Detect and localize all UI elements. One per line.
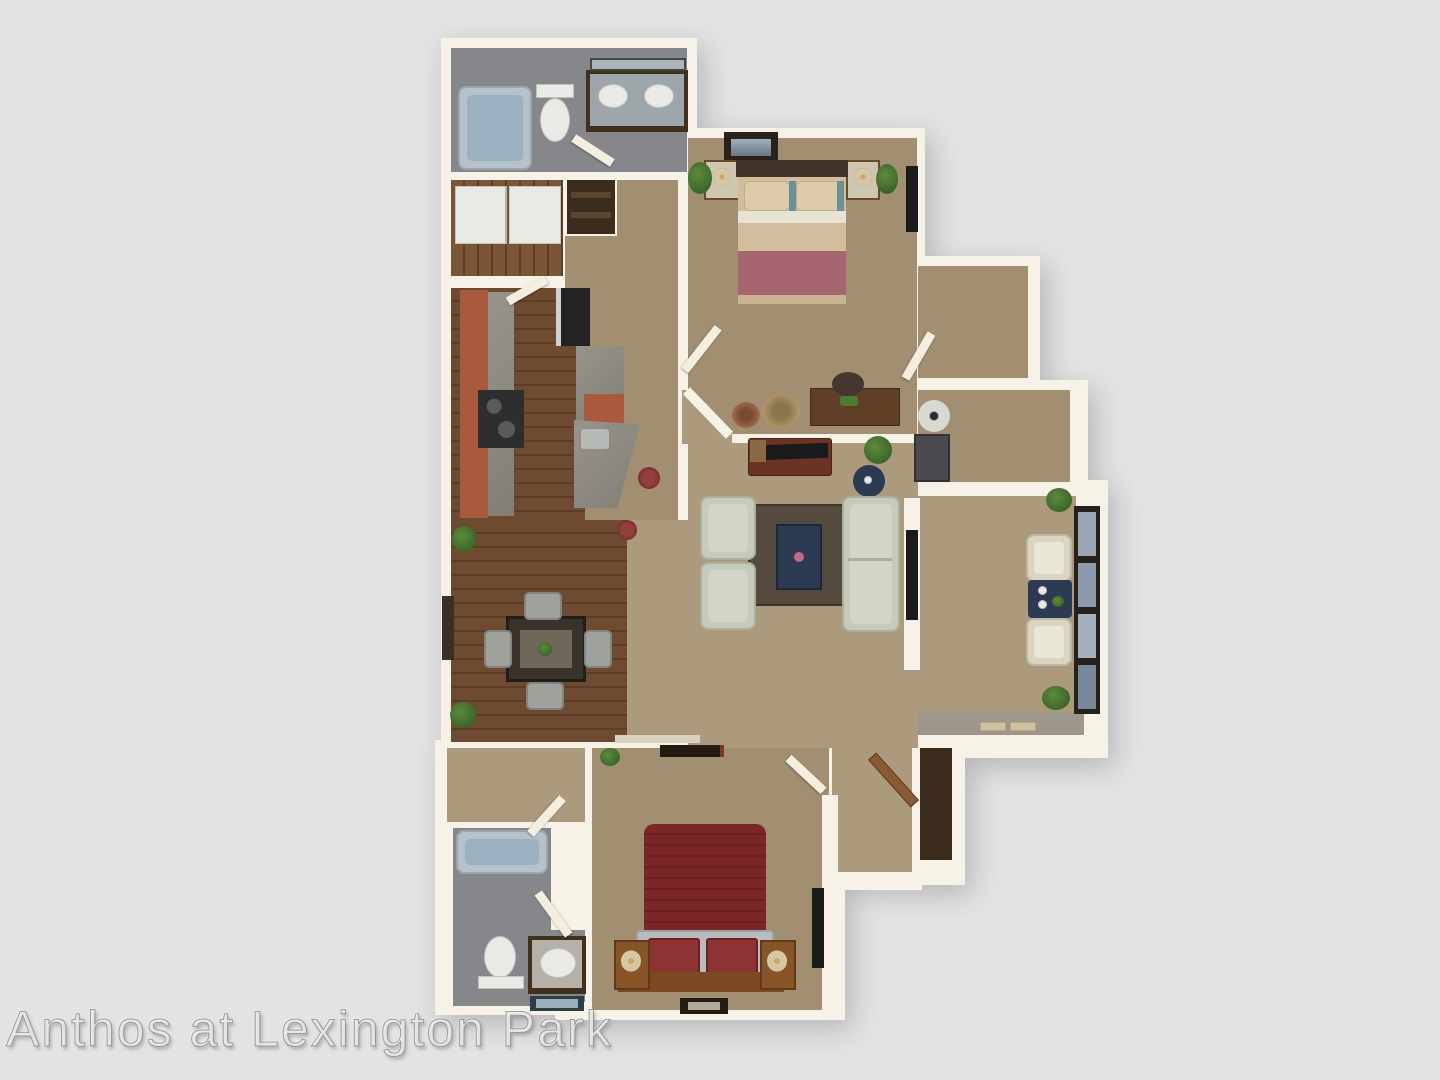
dining-carpet	[627, 520, 695, 742]
floorplan-image: Anthos at Lexington Park	[0, 0, 1440, 1080]
bed2-blanket	[738, 251, 846, 295]
corridor-south-wall	[830, 872, 922, 890]
dining-chair	[524, 592, 562, 620]
table-centerpiece-plant	[538, 642, 552, 656]
wall-tv	[812, 888, 824, 968]
dresser	[914, 434, 950, 482]
room-entry-closet	[920, 748, 952, 860]
tv-screen	[731, 139, 771, 156]
flower-decor	[794, 552, 804, 562]
pillow	[796, 181, 842, 211]
potted-plant	[876, 164, 898, 194]
watermark-text: Anthos at Lexington Park	[6, 1000, 906, 1070]
sink	[644, 84, 674, 108]
doormat	[980, 722, 1006, 731]
bed2-headboard	[736, 160, 848, 177]
dining-chair	[484, 630, 512, 668]
hallway-top-carpet	[617, 180, 678, 288]
patio-table	[1028, 580, 1072, 618]
nook-shelf	[571, 212, 611, 218]
dining-chair	[526, 682, 564, 710]
potted-plant	[450, 702, 476, 728]
round-chair	[918, 400, 950, 432]
lamp	[713, 168, 731, 186]
tv	[760, 443, 828, 460]
dryer	[509, 186, 561, 244]
lamp	[767, 950, 787, 972]
half-wall-ledge	[615, 735, 700, 743]
lamp	[621, 950, 641, 972]
stove	[478, 390, 524, 448]
pillow-accent	[789, 181, 796, 211]
potted-plant	[1046, 488, 1072, 512]
bathtub	[456, 830, 548, 874]
toilet-bowl	[540, 98, 570, 142]
pillow-accent	[837, 181, 844, 211]
entry-corridor	[832, 610, 912, 872]
hallway-top-carpet2	[565, 236, 617, 288]
refrigerator	[556, 288, 590, 346]
vanity-mirror	[590, 58, 686, 71]
desk-chair	[832, 372, 864, 396]
speaker-box	[750, 440, 766, 462]
potted-plant	[600, 748, 620, 766]
dining-window	[442, 596, 454, 660]
wall-tv	[906, 530, 918, 620]
kitchen-sink	[580, 428, 610, 450]
bed2-foot	[738, 295, 846, 304]
cup	[1038, 600, 1047, 609]
bar-stool	[638, 467, 660, 489]
room-linen-nook	[567, 180, 615, 234]
bed2-sheet-fold	[738, 211, 846, 223]
woven-ottoman	[762, 394, 800, 428]
window-pane	[1078, 614, 1096, 658]
toilet-tank	[536, 84, 574, 98]
potted-plant	[864, 436, 892, 464]
toilet-tank	[478, 976, 524, 989]
pillow	[744, 181, 790, 211]
doormat	[1010, 722, 1036, 731]
bed1-body	[644, 824, 766, 936]
potted-plant	[688, 162, 712, 194]
washer	[455, 186, 507, 244]
dining-chair	[584, 630, 612, 668]
armchair	[700, 562, 756, 630]
potted-plant	[1042, 686, 1070, 710]
bathtub	[458, 86, 532, 170]
sink	[598, 84, 628, 108]
dresser-console	[660, 745, 724, 757]
kitchen-cabinets-east	[584, 394, 624, 424]
bar-stool	[617, 520, 637, 540]
floor-pouf	[732, 402, 760, 428]
desk-plant	[840, 396, 858, 406]
wall-tv	[906, 166, 918, 232]
table-plant	[1052, 596, 1064, 607]
toilet-bowl	[484, 936, 516, 978]
bedroom1-east-wall	[822, 795, 838, 1010]
room-walk-in-closet	[918, 266, 1028, 378]
nook-shelf	[571, 192, 611, 198]
potted-plant	[452, 526, 476, 552]
cup	[1038, 586, 1047, 595]
window-pane	[1078, 563, 1096, 607]
window-pane	[1078, 665, 1096, 709]
window-pane	[1078, 512, 1096, 556]
patio-chair	[1026, 618, 1072, 666]
room-walk-in-closet-2	[447, 748, 585, 822]
lamp	[854, 168, 872, 186]
armchair	[700, 496, 756, 560]
sofa-cushion-seam	[848, 558, 892, 561]
side-table-decor	[864, 476, 872, 484]
sofa	[842, 496, 900, 632]
patio-chair	[1026, 534, 1072, 582]
sink	[540, 948, 576, 978]
